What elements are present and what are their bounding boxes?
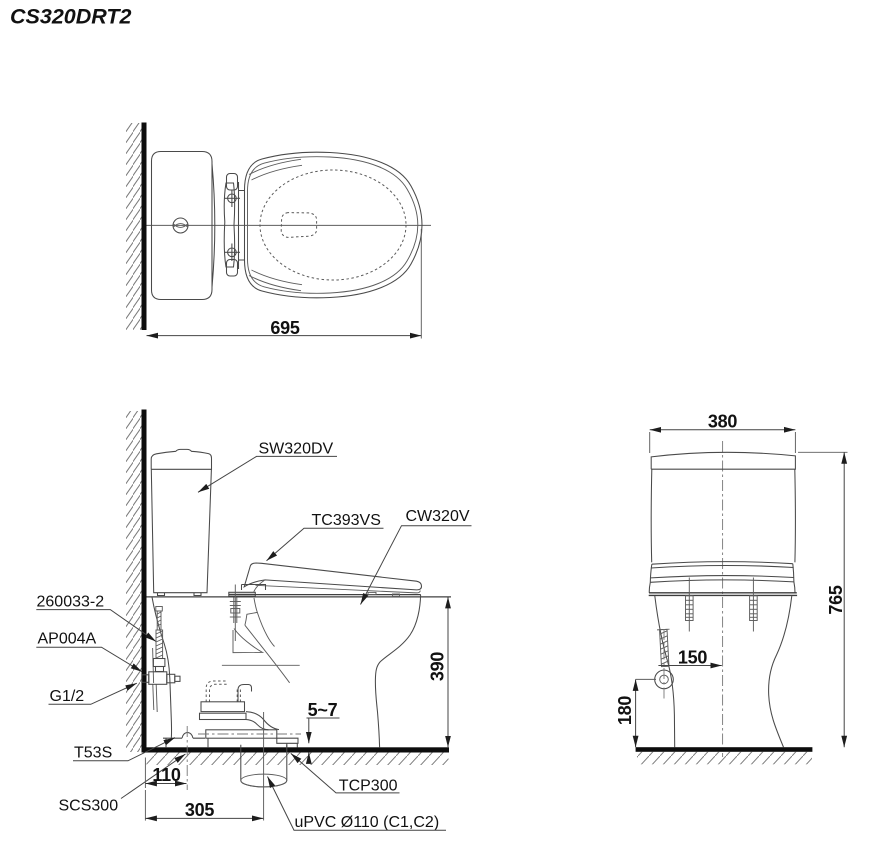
svg-text:AP004A: AP004A: [38, 631, 97, 648]
svg-text:695: 695: [270, 318, 299, 338]
svg-text:390: 390: [428, 652, 448, 681]
svg-text:CS320DRT2: CS320DRT2: [10, 5, 132, 29]
svg-text:180: 180: [615, 696, 635, 725]
svg-text:260033-2: 260033-2: [37, 594, 105, 611]
svg-text:5~7: 5~7: [308, 700, 338, 720]
svg-text:G1/2: G1/2: [50, 688, 85, 705]
svg-text:SCS300: SCS300: [59, 798, 119, 815]
svg-text:uPVC Ø110 (C1,C2): uPVC Ø110 (C1,C2): [295, 814, 440, 831]
svg-text:TCP300: TCP300: [339, 777, 398, 794]
svg-text:CW320V: CW320V: [406, 508, 470, 525]
svg-text:150: 150: [678, 648, 707, 668]
svg-text:380: 380: [708, 412, 737, 432]
svg-text:TC393VS: TC393VS: [312, 512, 381, 529]
svg-text:SW320DV: SW320DV: [259, 440, 334, 457]
svg-text:110: 110: [152, 765, 180, 785]
svg-text:305: 305: [185, 800, 214, 820]
svg-text:765: 765: [826, 585, 846, 614]
svg-text:T53S: T53S: [74, 745, 112, 762]
